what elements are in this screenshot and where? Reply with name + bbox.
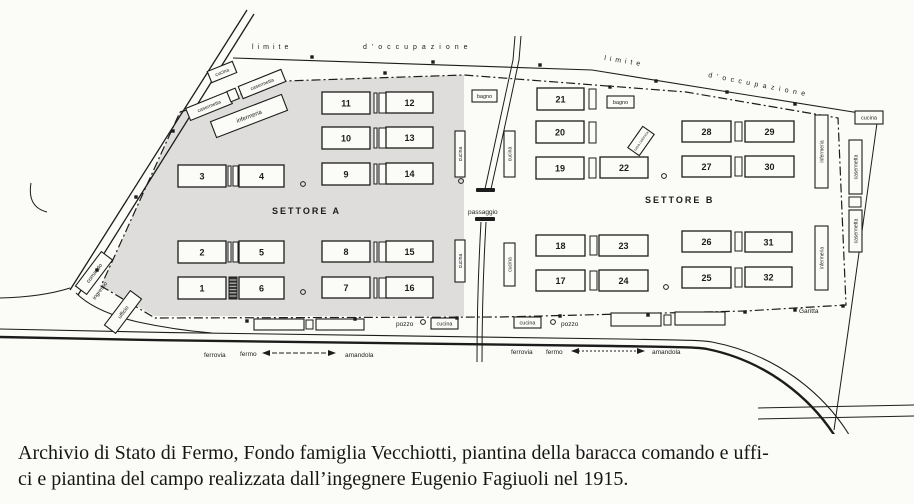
connector-box — [379, 93, 386, 113]
connector-box — [735, 232, 742, 251]
arrowhead-left-b — [328, 350, 336, 356]
cucina-label: cucina — [458, 147, 464, 162]
boundary-marker — [171, 129, 174, 132]
connector-box — [374, 278, 377, 298]
map-label-pozzo: pozzo — [561, 321, 579, 328]
railway-lower-rail — [0, 337, 847, 434]
building-number-24: 24 — [618, 276, 628, 286]
connector-box — [849, 197, 861, 207]
boundary-marker — [353, 317, 356, 320]
infermeria-label: infermeria — [819, 247, 825, 269]
central-road-lower-right — [482, 222, 486, 362]
building-number-6: 6 — [259, 283, 264, 293]
bagno-label: bagno — [477, 94, 492, 100]
connector-box — [379, 242, 386, 262]
boundary-marker — [793, 308, 796, 311]
connector-box — [374, 128, 377, 148]
caption-line-1: Archivio di Stato di Fermo, Fondo famigl… — [18, 440, 914, 466]
central-road-lower-left — [477, 222, 481, 362]
connector-box — [374, 164, 377, 184]
boundary-marker — [245, 319, 248, 322]
map-label-amandola: amandola — [345, 352, 374, 359]
gate-bar — [476, 188, 495, 192]
boundary-marker — [455, 316, 458, 319]
map-label-passaggio: passaggio — [468, 209, 498, 216]
connector-box — [379, 278, 386, 298]
casa-colonica-building: casa colonica — [628, 126, 654, 155]
building-number-12: 12 — [404, 98, 414, 108]
well-circle — [662, 174, 667, 179]
connector-box — [228, 166, 231, 186]
arrowhead-right-a — [571, 348, 579, 354]
boundary-marker — [608, 85, 611, 88]
cucina-label: cucina — [458, 254, 464, 269]
building-number-8: 8 — [343, 247, 348, 257]
boundary-marker — [310, 55, 313, 58]
cucina-label: cucina — [507, 147, 513, 162]
caption-line-2: ci e piantina del campo realizzata dall’… — [18, 466, 914, 492]
connector-box — [379, 128, 386, 148]
boundary-marker — [558, 314, 561, 317]
road-bottomright-upper — [758, 405, 914, 408]
boundary-marker — [383, 71, 386, 74]
connector-box — [590, 236, 597, 255]
left-hook-curve — [30, 183, 47, 212]
boundary-marker — [793, 102, 796, 105]
map-label-amandola: amandola — [652, 349, 681, 356]
map-label-ferrovia: ferrovia — [511, 349, 533, 356]
building-number-32: 32 — [763, 272, 773, 282]
connector-box — [589, 122, 596, 143]
cucina-label: cucina — [861, 116, 878, 122]
connector-box — [735, 268, 742, 287]
infermeria-label: infermeria — [819, 140, 825, 162]
cucina-label: cucina — [520, 321, 537, 327]
entrance-curve-west — [0, 288, 70, 298]
building-number-17: 17 — [555, 276, 565, 286]
boundary-marker — [431, 60, 434, 63]
connector-box — [228, 242, 231, 262]
map-label-ferrovia: ferrovia — [204, 352, 226, 359]
building-number-1: 1 — [199, 283, 204, 293]
gate-bar — [475, 217, 495, 221]
building-number-13: 13 — [404, 133, 414, 143]
building-number-21: 21 — [555, 94, 565, 104]
building-number-9: 9 — [343, 169, 348, 179]
boundary-marker — [646, 313, 649, 316]
building-number-23: 23 — [618, 241, 628, 251]
camp-map: 1234567891011121314151617181920212223242… — [0, 0, 914, 434]
building-number-28: 28 — [701, 127, 711, 137]
building-number-19: 19 — [555, 163, 565, 173]
building-number-26: 26 — [701, 237, 711, 247]
building-number-15: 15 — [404, 247, 414, 257]
connector-box — [589, 158, 596, 178]
map-label-d-occupazione: d'occupazione — [708, 72, 810, 99]
cucina-label: cucina — [437, 322, 454, 328]
building-number-11: 11 — [341, 98, 351, 108]
connector-box — [590, 271, 597, 290]
connector-box — [664, 315, 671, 325]
storage-building — [675, 312, 725, 325]
building-number-31: 31 — [763, 237, 773, 247]
arrowhead-right-b — [637, 348, 645, 354]
scanned-page: 1234567891011121314151617181920212223242… — [0, 0, 914, 504]
boundary-marker — [538, 63, 541, 66]
map-label-fermo: fermo — [546, 349, 563, 356]
map-label-settore-b: SETTORE B — [645, 195, 714, 205]
building-number-27: 27 — [701, 162, 711, 172]
map-label-limite: limite — [604, 55, 645, 68]
building-number-2: 2 — [199, 247, 204, 257]
connector-box — [233, 242, 238, 262]
building-number-3: 3 — [199, 171, 204, 181]
building-number-18: 18 — [555, 241, 565, 251]
building-number-30: 30 — [764, 162, 774, 172]
boundary-marker — [841, 304, 844, 307]
well-circle — [551, 320, 556, 325]
connector-box — [735, 157, 742, 176]
latrine-box — [229, 277, 237, 299]
boundary-marker — [134, 195, 137, 198]
map-label-d-occupazione: d'occupazione — [363, 44, 473, 51]
building-number-4: 4 — [259, 171, 264, 181]
storage-building — [254, 319, 304, 330]
arrowhead-left-a — [262, 350, 270, 356]
building-number-10: 10 — [341, 133, 351, 143]
building-number-25: 25 — [701, 273, 711, 283]
connector-box — [379, 164, 386, 184]
connector-box — [306, 320, 313, 329]
map-label-limite: limite — [252, 44, 292, 51]
boundary-marker — [654, 79, 657, 82]
connector-box — [374, 242, 377, 262]
building-number-7: 7 — [343, 283, 348, 293]
map-label-pozzo: pozzo — [396, 321, 414, 328]
storage-building — [611, 313, 661, 326]
well-circle — [664, 285, 669, 290]
boundary-marker — [743, 310, 746, 313]
storage-building — [316, 319, 364, 330]
casermetta-label: casermetta — [853, 218, 859, 243]
connector-box — [735, 122, 742, 141]
building-number-14: 14 — [404, 169, 414, 179]
map-label-fermo: fermo — [240, 351, 257, 358]
building-number-20: 20 — [555, 127, 565, 137]
connector-box — [233, 166, 238, 186]
connector-box — [589, 89, 596, 109]
connector-box — [374, 93, 377, 113]
building-number-5: 5 — [259, 247, 264, 257]
caption: Archivio di Stato di Fermo, Fondo famigl… — [0, 434, 914, 492]
boundary-marker — [725, 90, 728, 93]
boundary-marker — [95, 268, 98, 271]
map-label-garitta: Garitta — [799, 308, 819, 315]
cucina-label: cucina — [507, 257, 513, 272]
well-circle — [421, 320, 426, 325]
building-number-22: 22 — [619, 163, 629, 173]
map-label-settore-a: SETTORE A — [272, 206, 341, 216]
building-number-16: 16 — [404, 283, 414, 293]
bagno-label: bagno — [613, 100, 628, 106]
building-number-29: 29 — [764, 127, 774, 137]
casermetta-label: casermetta — [853, 154, 859, 179]
